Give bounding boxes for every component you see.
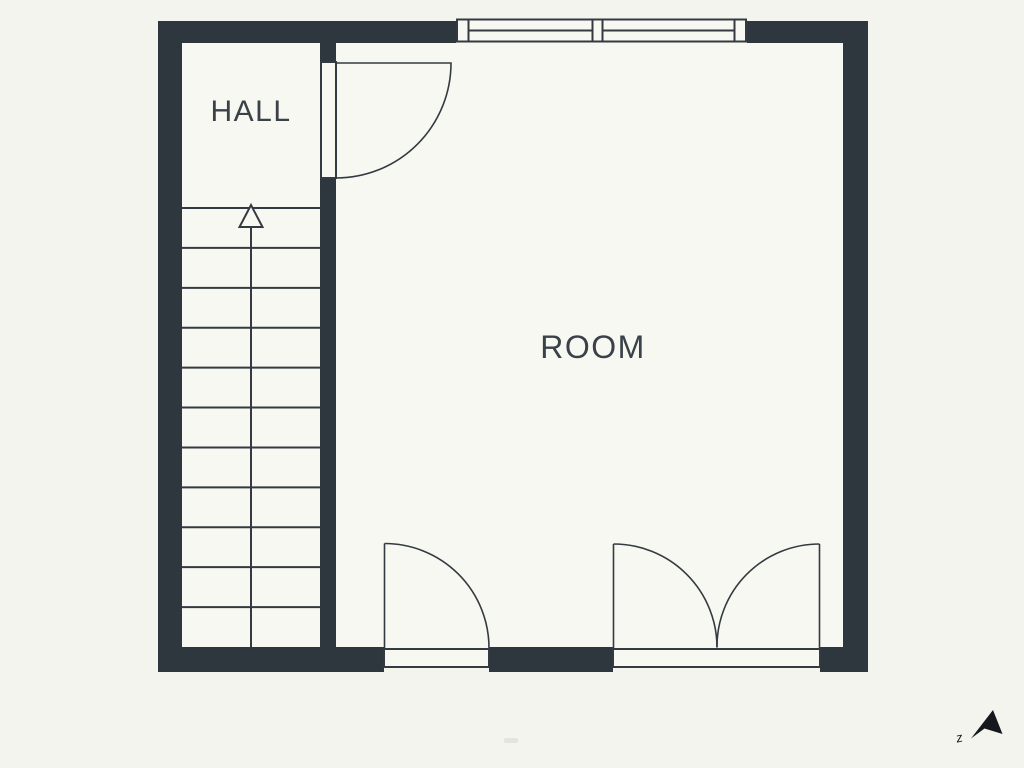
bottom-wall-left-segment [158, 647, 384, 672]
door-bottom-left-threshold [384, 649, 489, 667]
left-wall [158, 21, 182, 672]
right-wall [843, 21, 868, 672]
watermark-smudge [504, 738, 518, 743]
floorplan-canvas: HALL ROOM z [0, 0, 1024, 768]
top-wall-right-segment [747, 21, 868, 43]
north-arrow-icon [971, 710, 1003, 739]
hall-label: HALL [210, 97, 291, 127]
floorplan-drawing [0, 0, 1024, 768]
bottom-wall-middle-segment [489, 647, 613, 672]
door-hall-jamb [321, 62, 336, 178]
room-label: ROOM [540, 331, 646, 363]
top-wall-left-segment [158, 21, 456, 43]
bottom-wall-right-segment [820, 647, 868, 672]
window [457, 20, 746, 42]
interior-wall-upper-stub [320, 42, 336, 63]
interior-wall-lower-segment [320, 178, 336, 647]
door-double-threshold [613, 649, 820, 667]
